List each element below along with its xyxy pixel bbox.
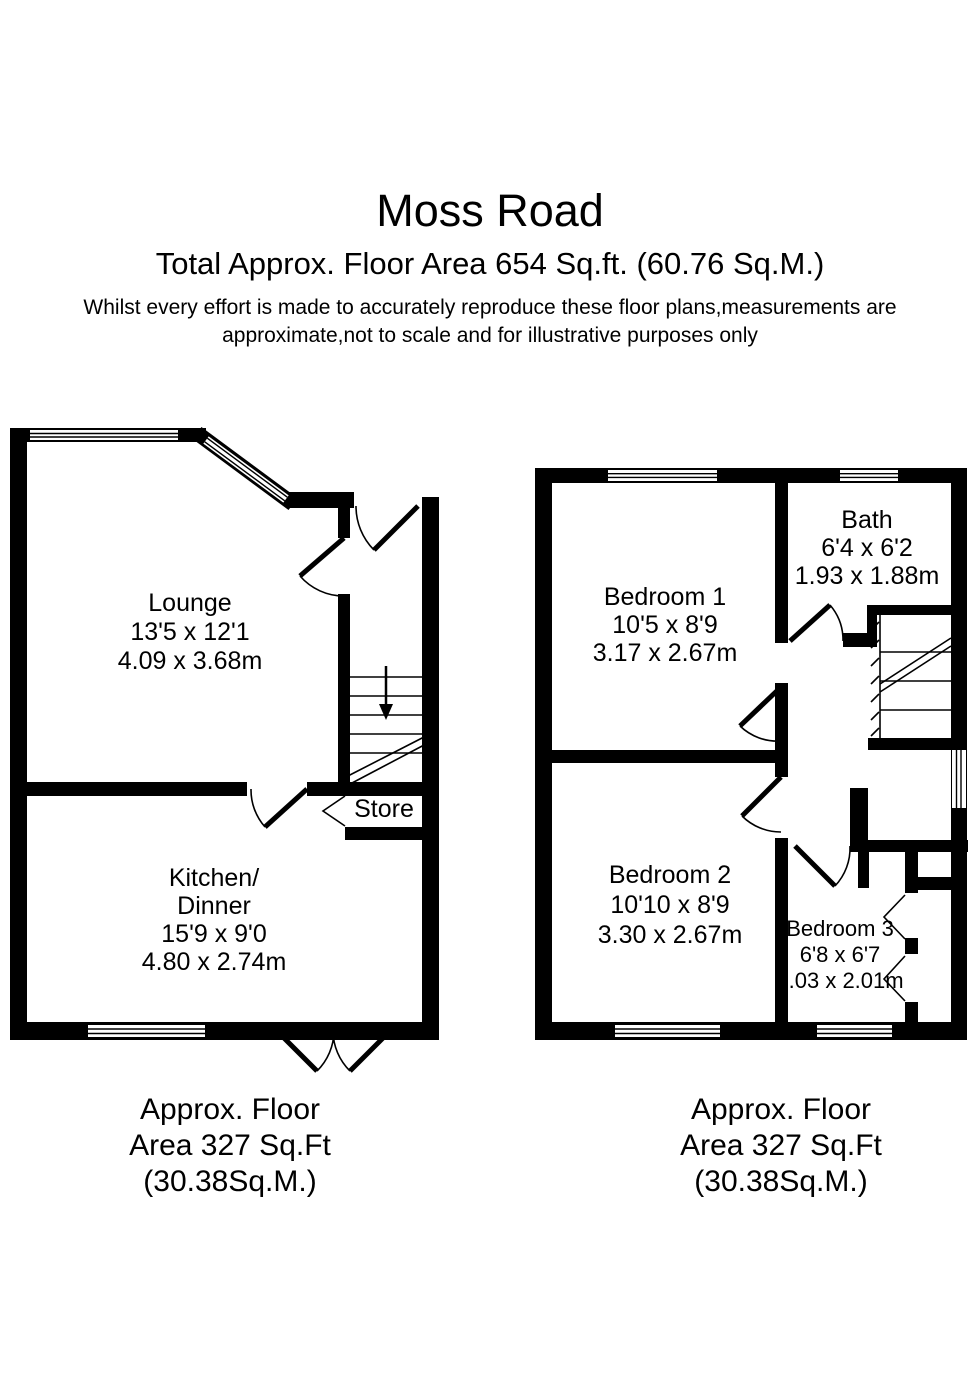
bath-door	[790, 605, 843, 641]
lounge-size-metric: 4.09 x 3.68m	[118, 647, 263, 675]
bedroom1-window	[608, 470, 717, 481]
lounge-door	[300, 538, 344, 596]
bedroom1-door	[740, 687, 781, 741]
bedroom3-size-metric: 2.03 x 2.01m	[776, 968, 903, 993]
stairs-down-arrow	[379, 666, 393, 720]
ground-floor-caption: Approx. Floor Area 327 Sq.Ft (30.38Sq.M.…	[30, 1092, 430, 1200]
kitchen-door	[251, 789, 307, 827]
bedroom3-label: Bedroom 3	[786, 916, 894, 941]
kitchen-size-imperial: 15'9 x 9'0	[161, 920, 266, 948]
bedroom1-label: Bedroom 1	[604, 583, 726, 611]
floorplan-page: Moss Road Total Approx. Floor Area 654 S…	[0, 0, 980, 1386]
ground-floor-plan: Lounge 13'5 x 12'1 4.09 x 3.68m Kitchen/…	[10, 428, 439, 1071]
bedroom3-door	[795, 846, 850, 886]
lounge-bay-window	[205, 438, 288, 501]
bedroom1-size-imperial: 10'5 x 8'9	[612, 611, 717, 639]
bedroom2-door	[742, 777, 781, 832]
bath-size-imperial: 6'4 x 6'2	[821, 534, 913, 562]
bath-label: Bath	[841, 506, 892, 534]
ground-caption-line2: Area 327 Sq.Ft	[30, 1128, 430, 1164]
lounge-front-window	[30, 430, 178, 440]
bedroom2-label: Bedroom 2	[609, 861, 731, 889]
first-caption-line1: Approx. Floor	[581, 1092, 980, 1128]
kitchen-size-metric: 4.80 x 2.74m	[142, 948, 287, 976]
first-stairs	[871, 615, 951, 738]
first-floor-caption: Approx. Floor Area 327 Sq.Ft (30.38Sq.M.…	[581, 1092, 980, 1200]
bedroom1-size-metric: 3.17 x 2.67m	[593, 639, 738, 667]
ground-stairs	[344, 666, 426, 783]
bath-window	[840, 470, 898, 481]
store-label: Store	[354, 795, 414, 823]
store-bifold-door	[323, 796, 345, 826]
kitchen-label-line2: Dinner	[177, 892, 251, 920]
first-floor-plan: Bedroom 1 10'5 x 8'9 3.17 x 2.67m Bath 6…	[535, 468, 968, 1040]
lounge-label: Lounge	[148, 589, 231, 617]
bedroom2-size-imperial: 10'10 x 8'9	[610, 891, 729, 919]
bedroom3-size-imperial: 6'8 x 6'7	[800, 942, 881, 967]
first-caption-line3: (30.38Sq.M.)	[581, 1164, 980, 1200]
front-door	[356, 506, 418, 550]
ground-caption-line1: Approx. Floor	[30, 1092, 430, 1128]
bedroom2-size-metric: 3.30 x 2.67m	[598, 921, 743, 949]
bath-size-metric: 1.93 x 1.88m	[795, 562, 940, 590]
landing-window	[952, 750, 966, 808]
bedroom2-window	[615, 1025, 720, 1037]
kitchen-window	[88, 1025, 205, 1037]
kitchen-label-line1: Kitchen/	[169, 864, 259, 892]
first-caption-line2: Area 327 Sq.Ft	[581, 1128, 980, 1164]
bedroom3-window	[817, 1025, 892, 1037]
lounge-size-imperial: 13'5 x 12'1	[130, 618, 249, 646]
ground-caption-line3: (30.38Sq.M.)	[30, 1164, 430, 1200]
